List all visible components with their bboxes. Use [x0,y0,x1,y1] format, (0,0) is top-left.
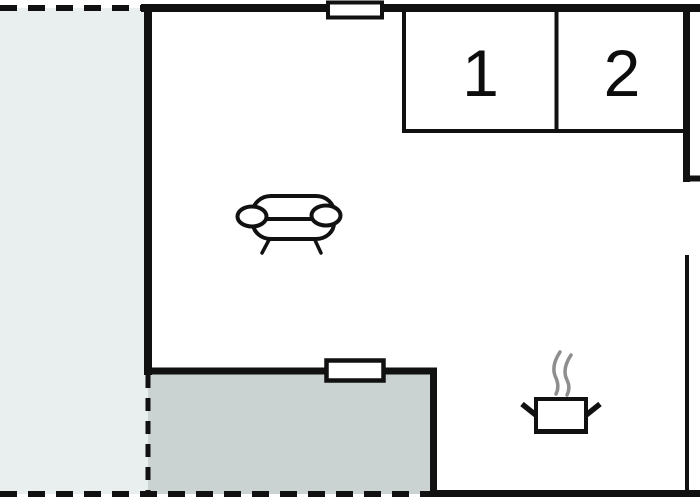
window-top [328,3,382,18]
terrace-area [148,371,434,494]
sofa-icon [238,196,341,253]
windows [327,3,384,381]
floor-plan: 1 2 [0,0,700,500]
steam-wisp-left [554,352,560,394]
cooking-pot-icon [522,352,600,432]
sofa-armrest-right [312,206,341,226]
pot-body [536,399,586,432]
room-2-label: 2 [557,14,687,131]
steam-icon [554,352,571,395]
outdoor-area [0,8,148,494]
room-1-label: 1 [404,14,557,131]
window-terrace [327,361,384,381]
steam-wisp-right [565,355,571,395]
sofa-armrest-left [238,207,267,227]
